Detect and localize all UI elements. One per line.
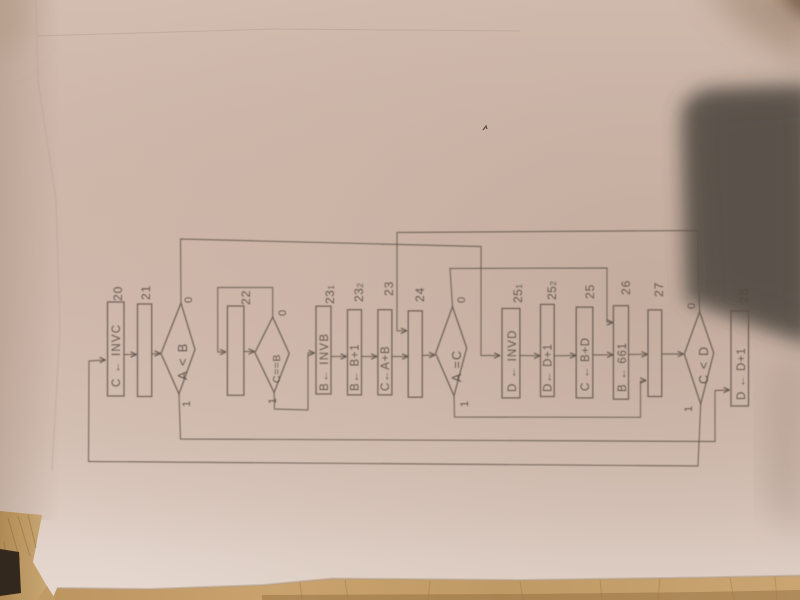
svg-text:D ← INVD: D ← INVD <box>507 330 519 392</box>
svg-text:0: 0 <box>686 302 698 309</box>
svg-text:26: 26 <box>619 280 633 295</box>
svg-text:B ← 661: B ← 661 <box>617 342 629 392</box>
svg-text:C ← B+D: C ← B+D <box>580 337 592 391</box>
svg-text:1: 1 <box>181 400 193 407</box>
svg-text:C ← INVC: C ← INVC <box>111 324 123 387</box>
svg-text:25: 25 <box>583 284 597 299</box>
svg-text:20: 20 <box>111 286 125 301</box>
svg-text:23: 23 <box>382 281 396 296</box>
svg-text:1: 1 <box>267 397 279 404</box>
svg-text:0: 0 <box>277 309 289 316</box>
svg-text:C==B: C==B <box>271 354 283 383</box>
svg-text:0: 0 <box>456 296 468 303</box>
svg-text:1: 1 <box>459 400 471 407</box>
svg-text:D ← D+1: D ← D+1 <box>736 347 748 400</box>
svg-text:21: 21 <box>139 285 153 300</box>
svg-text:B← B+1: B← B+1 <box>350 344 362 391</box>
svg-text:27: 27 <box>652 282 666 297</box>
svg-text:A < B: A < B <box>175 343 190 380</box>
svg-text:A =C: A =C <box>450 350 464 382</box>
svg-text:1: 1 <box>683 405 695 412</box>
svg-text:D← D+1: D← D+1 <box>543 343 555 392</box>
svg-text:C←A+B: C←A+B <box>380 346 392 391</box>
svg-text:24: 24 <box>413 287 427 302</box>
svg-text:22: 22 <box>239 290 253 305</box>
svg-text:B← INVB: B← INVB <box>319 333 331 391</box>
svg-text:C < D: C < D <box>697 346 711 384</box>
svg-text:28: 28 <box>737 288 751 303</box>
svg-text:0: 0 <box>183 296 195 303</box>
